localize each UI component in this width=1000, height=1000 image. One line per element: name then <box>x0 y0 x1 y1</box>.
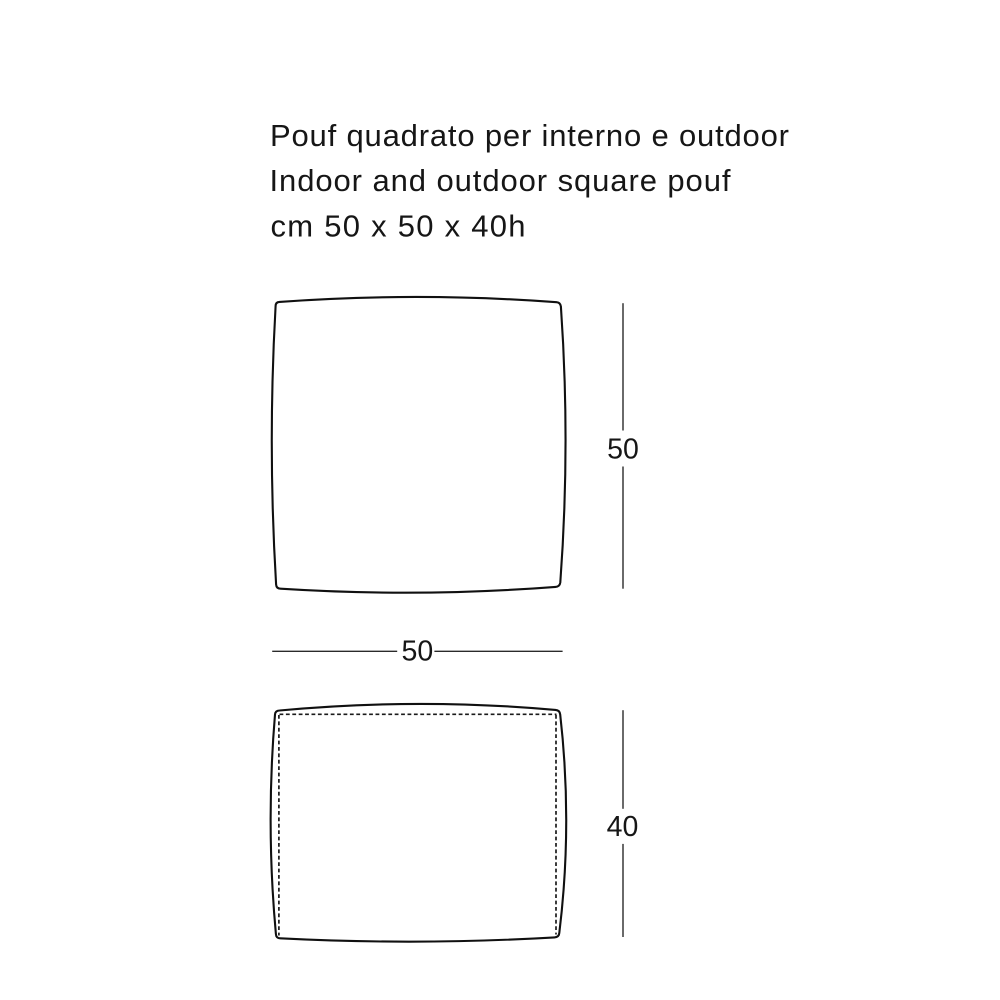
svg-text:Pouf quadrato per interno e ou: Pouf quadrato per interno e outdoor <box>270 118 789 153</box>
svg-text:cm 50 x 50 x 40h: cm 50 x 50 x 40h <box>271 209 526 244</box>
svg-text:50: 50 <box>607 433 639 465</box>
svg-text:50: 50 <box>402 635 434 667</box>
svg-text:40: 40 <box>607 811 639 843</box>
svg-text:Indoor and outdoor square pouf: Indoor and outdoor square pouf <box>270 163 731 198</box>
